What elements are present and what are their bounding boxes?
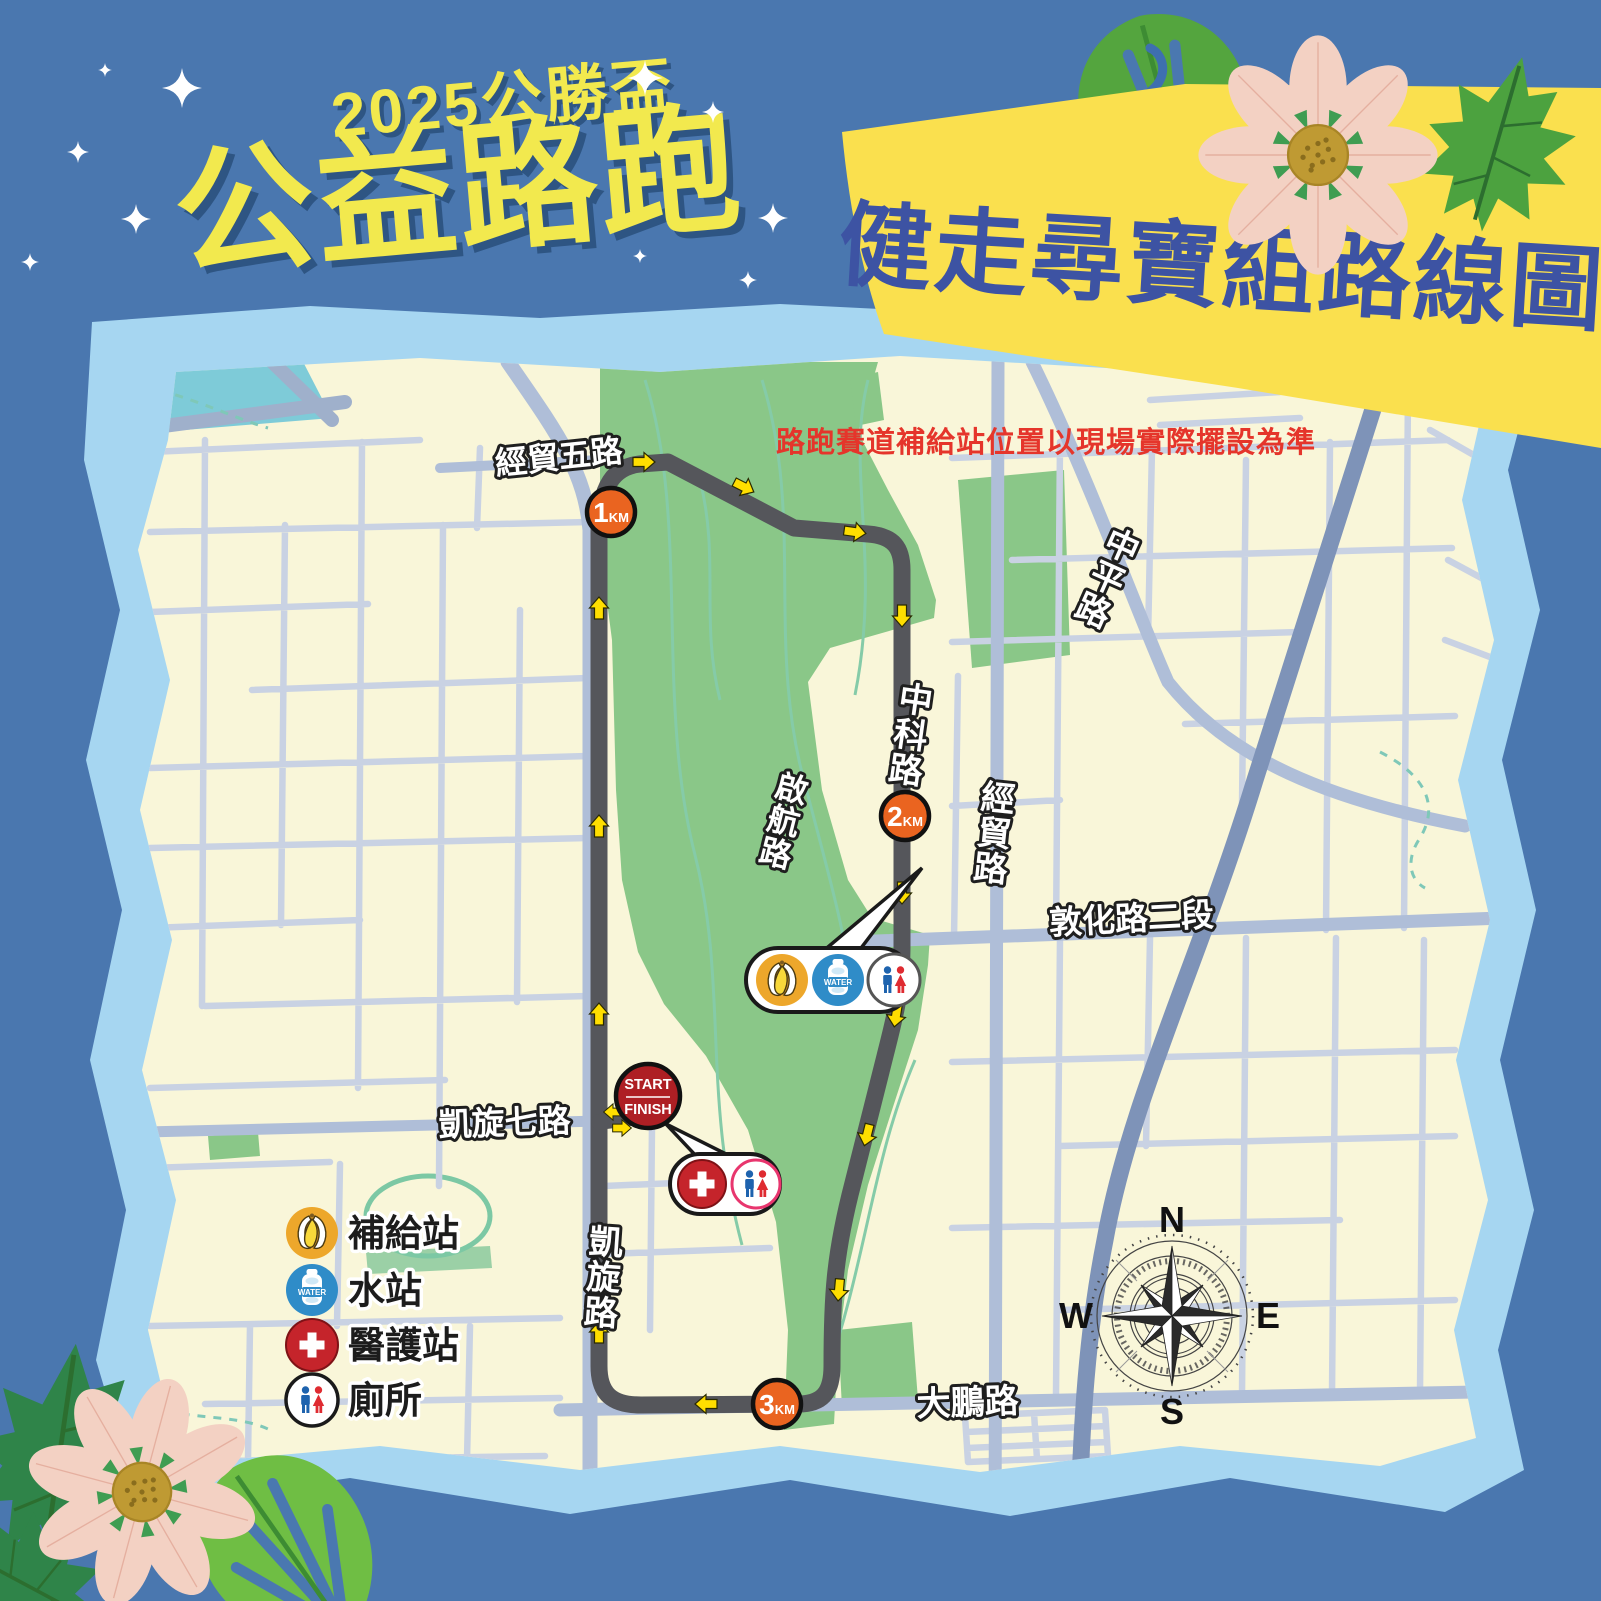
green-block-left: [208, 1132, 260, 1160]
marker-3km: 3KM: [753, 1380, 801, 1428]
compass-s: S: [1160, 1391, 1184, 1432]
supply-station-notice: 路跑賽道補給站位置以現場實際擺設為準: [776, 425, 1316, 459]
marker-1km: 1KM: [587, 488, 635, 536]
poster-canvas: WATER: [0, 0, 1601, 1601]
compass-n: N: [1159, 1199, 1185, 1240]
svg-text:START: START: [624, 1077, 671, 1093]
legend-item-water: 水站: [286, 1264, 422, 1316]
street-label-kaixuan7: 凱旋七路: [438, 1102, 572, 1144]
svg-text:補給站: 補給站: [348, 1213, 459, 1254]
road-jingmao: [995, 362, 998, 1552]
green-block-bottom: [838, 1322, 918, 1408]
legend-item-medical: 醫護站: [286, 1319, 459, 1371]
svg-text:廁所: 廁所: [348, 1379, 422, 1421]
marker-start-finish: START FINISH: [616, 1064, 680, 1128]
poster: WATER: [0, 0, 1601, 1601]
cosmos-flower-top-right: [1198, 35, 1437, 274]
street-label-dapeng: 大鵬路: [916, 1382, 1020, 1424]
compass-e: E: [1256, 1295, 1280, 1336]
legend-item-toilet: 廁所: [286, 1374, 422, 1426]
marker-2km: 2KM: [881, 792, 929, 840]
svg-text:水站: 水站: [348, 1270, 422, 1311]
legend-item-supply: 補給站: [286, 1207, 459, 1259]
svg-text:FINISH: FINISH: [624, 1102, 672, 1118]
compass-w: W: [1059, 1295, 1093, 1336]
svg-text:醫護站: 醫護站: [348, 1325, 459, 1366]
